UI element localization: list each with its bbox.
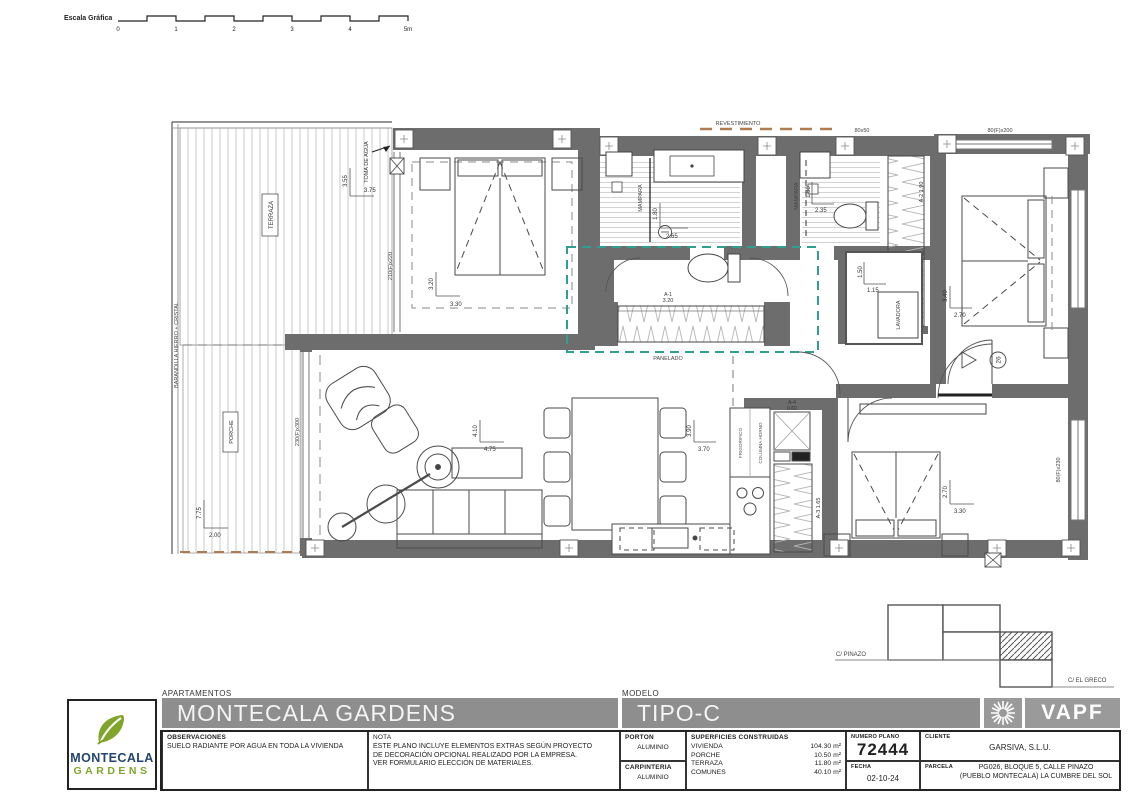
cliente-value: GARSIVA, S.L.U. [925, 743, 1115, 752]
apartamentos-label: APARTAMENTOS [162, 689, 232, 698]
parcela-cell: PARCELA PG026, BLOQUE 5, CALLE PINAZO (P… [920, 761, 1120, 790]
dim-porch-v: 7.75 [197, 507, 203, 519]
dim-living-h: 4.75 [484, 447, 496, 453]
dim-laundry-v: 1.50 [858, 266, 864, 278]
wardrobe-a4-size: 0.60 [787, 406, 797, 412]
oven-column-label: COLUMNA HORNO [758, 422, 763, 464]
water-intake-label: TOMA DE AGUA [364, 141, 370, 183]
scale-tick-5: 5m [404, 27, 412, 33]
site-plan-current-block [1000, 632, 1052, 660]
modelo-label: MODELO [622, 689, 659, 698]
railing-label: BARANDILLA HIERRO + CRISTAL [174, 302, 180, 388]
street-pinazo-label: C/ PINAZO [836, 652, 866, 658]
dim-bed2-v: 3.40 [943, 290, 949, 302]
superficies-label: SUPERFICIES CONSTRUIDAS [691, 734, 841, 741]
armchair [320, 361, 395, 435]
nota-line-2: DE DECORACIÓN OPCIONAL REALIZADO POR LA … [373, 752, 615, 761]
superficie-name-2: TERRAZA [691, 760, 723, 769]
washer-label: LAVADORA [896, 300, 902, 329]
cliente-cell: CLIENTE GARSIVA, S.L.U. [920, 731, 1120, 761]
model-title: TIPO-C [637, 700, 721, 727]
wardrobe-a3: A-3 1.65 [774, 464, 822, 552]
carpinteria-label: CARPINTERIA [625, 764, 681, 771]
terrace-label: TERRAZA [269, 201, 275, 229]
dim-bed3-h: 3.30 [954, 509, 966, 515]
project-title: MONTECALA GARDENS [177, 700, 456, 727]
street-elgreco-label: C/ EL GRECO [1068, 678, 1107, 684]
superficie-name-0: VIVIENDA [691, 743, 723, 752]
dim-bed2-h: 2.70 [954, 313, 966, 319]
nota-cell: NOTA ESTE PLANO INCLUYE ELEMENTOS EXTRAS… [368, 731, 620, 790]
observaciones-text: SUELO RADIANTE POR AGUA EN TODA LA VIVIE… [167, 743, 363, 752]
dim-bath1-v: 1.80 [653, 208, 659, 220]
panelado-label: PANELADO [653, 356, 683, 362]
shower-screen-label-2: MAMPARA [794, 182, 800, 210]
observaciones-label: OBSERVACIONES [167, 734, 363, 741]
logo-text-montecala: MONTECALA [70, 751, 153, 765]
dim-living-v: 4.10 [473, 425, 479, 437]
numero-plano-cell: NUMERO PLANO 72444 [846, 731, 920, 761]
carpinteria-cell: CARPINTERIA ALUMINIO [620, 761, 686, 790]
porch-label: PORCHE [229, 420, 235, 444]
scale-bar: Escala Gráfica 0 1 2 3 4 5m [64, 15, 412, 33]
cliente-label: CLIENTE [925, 734, 1115, 740]
sofa [397, 490, 542, 548]
dim-master-v: 3.20 [429, 278, 435, 290]
vapf-logo: VAPF [984, 698, 1120, 728]
vapf-star-icon [984, 698, 1022, 728]
wardrobe-a2-label: A-2 1.90 [919, 182, 925, 203]
window-label-small: 80x50 [855, 128, 870, 134]
wardrobe-a3-label: A-3 1.65 [816, 498, 822, 519]
observaciones-cell: OBSERVACIONES SUELO RADIANTE POR AGUA EN… [162, 731, 368, 790]
porton-value: ALUMINIO [625, 744, 681, 751]
scale-tick-1: 1 [174, 27, 178, 33]
scale-tick-2: 2 [232, 27, 236, 33]
site-plan: C/ PINAZO C/ EL GRECO [835, 605, 1114, 687]
porton-label: PORTON [625, 734, 681, 741]
superficie-value-0: 104.30 m² [810, 743, 841, 752]
fridge-label: FRIGORIFICO [738, 428, 743, 459]
carpinteria-value: ALUMINIO [625, 774, 681, 781]
montecala-logo: MONTECALA GARDENS [67, 699, 157, 790]
superficie-value-2: 11.80 m² [815, 760, 841, 769]
dim-dining-h: 3.70 [698, 447, 710, 453]
parcela-label: PARCELA [925, 764, 953, 770]
window-label-living: 230(F)x300 [295, 418, 301, 446]
scale-tick-0: 0 [116, 27, 120, 33]
bathroom-2: MAMPARA 1.80 2.35 [794, 152, 880, 244]
nota-label: NOTA [373, 734, 615, 741]
scale-bar-label: Escala Gráfica [64, 15, 112, 22]
shower-screen-label-1: MAMPARA [638, 184, 644, 212]
living-room: 4.10 4.75 230(F)x300 [295, 361, 542, 548]
dim-porch-h: 2.00 [209, 533, 221, 539]
dim-terrace-v: 3.55 [343, 175, 349, 187]
porton-cell: PORTON ALUMINIO [620, 731, 686, 761]
logo-text-gardens: GARDENS [73, 765, 150, 777]
scale-tick-4: 4 [348, 27, 352, 33]
wardrobe-a1-size: 3.20 [663, 298, 674, 304]
dim-laundry-h: 1.15 [867, 288, 879, 294]
dim-bath2-v: 1.80 [806, 186, 812, 198]
laundry-room: LAVADORA 1.50 1.15 [846, 252, 922, 344]
ottoman [368, 401, 422, 457]
dining-area: 3.90 3.70 [544, 398, 716, 530]
fecha-label: FECHA [851, 764, 915, 770]
project-title-bar: MONTECALA GARDENS [162, 698, 618, 728]
parcela-line-2: (PUEBLO MONTECALA) LA CUMBRE DEL SOL [957, 773, 1115, 782]
window-label-bed2: 80(F)x200 [987, 128, 1012, 134]
nota-line-1: ESTE PLANO INCLUYE ELEMENTOS EXTRAS SEGÚ… [373, 743, 615, 752]
dim-bed3-v: 2.70 [943, 486, 949, 498]
dim-bath1-h: 2.65 [666, 234, 678, 240]
leaf-icon [92, 713, 132, 749]
numero-plano-value: 72444 [851, 740, 915, 760]
dim-master-h: 3.30 [450, 302, 462, 308]
cladding-label: REVESTIMIENTO [716, 121, 762, 127]
dim-terrace-h: 3.75 [364, 188, 376, 194]
nota-line-3: VER FORMULARIO ELECCIÓN DE MATERIALES. [373, 760, 615, 769]
parcela-line-1: PG026, BLOQUE 5, CALLE PINAZO [957, 764, 1115, 773]
superficie-value-1: 10.50 m² [814, 752, 841, 761]
superficie-value-3: 40.10 m² [814, 769, 841, 778]
window-label-bed3: 80(F)x230 [1056, 457, 1062, 482]
superficies-cell: SUPERFICIES CONSTRUIDAS VIVIENDA104.30 m… [686, 731, 846, 790]
window-label-master: 210(F)x220 [388, 252, 394, 280]
drawing-sheet: Escala Gráfica 0 1 2 3 4 5m TERRAZA PORC… [0, 0, 1135, 801]
fecha-cell: FECHA 02-10-24 [846, 761, 920, 790]
superficie-name-3: COMUNES [691, 769, 726, 778]
superficie-name-1: PORCHE [691, 752, 720, 761]
master-bedroom: 3.20 3.30 210(F)x220 [388, 158, 582, 308]
floor-plan-drawing: Escala Gráfica 0 1 2 3 4 5m TERRAZA PORC… [0, 0, 1135, 690]
dim-dining-v: 3.90 [687, 425, 693, 437]
door-number: 26 [996, 356, 1003, 364]
dim-bath2-h: 2.35 [815, 208, 827, 214]
model-title-bar: TIPO-C [622, 698, 980, 728]
vapf-name: VAPF [1025, 698, 1120, 728]
scale-tick-3: 3 [290, 27, 294, 33]
fecha-value: 02-10-24 [851, 774, 915, 783]
